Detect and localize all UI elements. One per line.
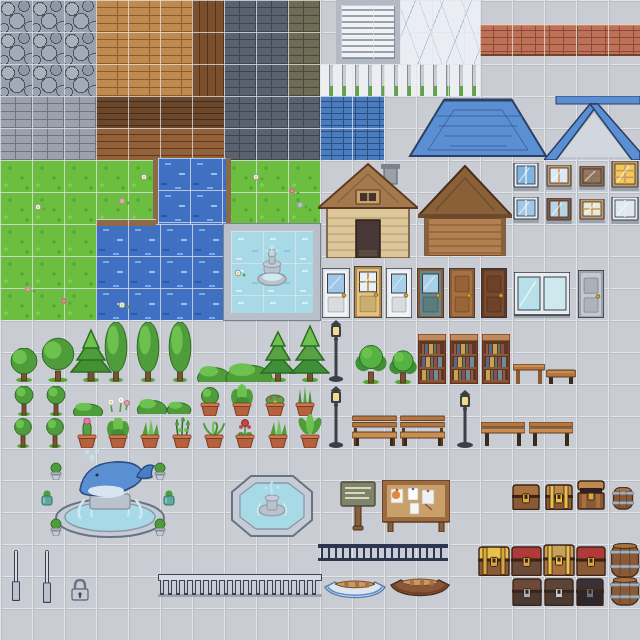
chest-gold-large-graphic [543, 544, 575, 576]
wood-siding-dark [96, 96, 224, 128]
bench-with-back [400, 414, 445, 446]
whale-fountain-graphic [54, 446, 166, 538]
rowboat-white [324, 578, 386, 604]
padlock-graphic [70, 578, 90, 602]
pond-bank [96, 219, 156, 226]
door-tan-window [354, 266, 382, 318]
door-sliding-glass [514, 272, 570, 318]
grass-flower-graphic [118, 300, 132, 310]
teal-planter [40, 490, 54, 506]
door-white-glass [322, 268, 350, 318]
chest-gold-graphic [478, 546, 510, 576]
door-white-blueglass-graphic [386, 268, 412, 318]
cottage-gable-plank [418, 164, 512, 256]
mini-potted-plant-graphic [152, 462, 168, 480]
mini-potted-plant [152, 518, 168, 536]
tileset-sheet: Pixel art village tileset sheet [0, 0, 640, 640]
grass-flower-graphic [140, 172, 154, 182]
brick-wall-slate [224, 0, 288, 160]
potted-big-leaf [296, 414, 324, 448]
potted-fern [200, 418, 228, 448]
potted-plant [136, 418, 164, 448]
mini-potted-plant-graphic [152, 518, 168, 536]
white-picket-fence [320, 64, 480, 96]
mini-potted-plant [152, 462, 168, 480]
window-white-blue-graphic [513, 163, 539, 191]
bookshelf [418, 334, 446, 384]
thin-post-graphic [40, 550, 54, 604]
tree-leafy-small [388, 350, 418, 384]
blue-shingle-wall [320, 96, 384, 160]
potted-plant [104, 418, 132, 448]
mini-potted-plant-graphic [48, 462, 64, 480]
cottage-with-chimney [318, 162, 418, 258]
barrel-large [610, 542, 640, 578]
notice-board-graphic [382, 480, 450, 532]
grass-flower [140, 172, 154, 182]
grass-flower [234, 268, 248, 278]
potted-zz-plant-graphic [168, 414, 196, 448]
door-grey-panel-graphic [578, 270, 604, 318]
bush-low-graphic [72, 396, 104, 416]
bush-blob-graphic [166, 396, 192, 414]
topiary-ball-graphic [8, 386, 40, 416]
bench-with-back-graphic [352, 414, 397, 446]
bush-low [72, 396, 104, 416]
grass-flower-graphic [118, 196, 132, 206]
tree-leafy-small-graphic [388, 350, 418, 384]
grass-flower-graphic [60, 296, 74, 306]
wooden-sign [340, 478, 376, 532]
door-grey-panel [578, 270, 604, 318]
chest-dark-trim [544, 578, 574, 606]
brick-wall-olive [288, 0, 320, 96]
teal-planter-graphic [40, 490, 54, 506]
notice-board [382, 480, 450, 532]
window-brown-four [579, 166, 605, 190]
bench-with-back-graphic [400, 414, 445, 446]
chest-dark-silver [512, 578, 542, 606]
gable-roof-blue-graphic [544, 96, 640, 160]
rowboat-brown [390, 576, 450, 602]
chest-open-graphic [577, 480, 605, 510]
tree-leafy [354, 342, 388, 384]
grass-flower-graphic [234, 268, 248, 278]
tree-leafy-graphic [354, 342, 388, 384]
grass-flower-graphic [24, 284, 38, 294]
potted-red-flower-graphic [232, 416, 258, 448]
door-white-blueglass [386, 268, 412, 318]
window-white-sky [513, 197, 539, 223]
chest-gold [478, 546, 510, 576]
hip-roof-blue-graphic [408, 96, 548, 160]
pine-tall-graphic [290, 318, 330, 382]
topiary-ball-graphic [40, 386, 72, 416]
cottage-with-chimney-graphic [318, 162, 418, 258]
chest-red-lid-graphic [511, 546, 542, 576]
lamp-post-graphic [455, 390, 475, 448]
bench-flat [481, 422, 525, 446]
grass-flower [60, 296, 74, 306]
barrel-small-graphic [612, 486, 634, 510]
tree-cypress-graphic [162, 322, 198, 382]
grass-flower-graphic [252, 172, 266, 182]
octagonal-fountain-graphic [230, 474, 314, 538]
rowboat-white-graphic [324, 578, 386, 604]
chest-wood-closed-graphic [512, 484, 540, 510]
door-teal-glass [417, 268, 444, 318]
potted-zz-plant [168, 414, 196, 448]
bench-flat-graphic [529, 422, 573, 446]
potted-cactus-flower-graphic [74, 418, 100, 448]
thin-post [40, 550, 54, 604]
cobblestone-wall-tiles [0, 0, 96, 96]
potted-plant-graphic [264, 418, 292, 448]
tree-cypress [98, 322, 134, 382]
door-tan-window-graphic [354, 266, 382, 318]
pool-fountain-center [256, 242, 288, 286]
window-blinds-tile [336, 0, 400, 64]
potted-leafy-plant-graphic [228, 384, 256, 416]
marble-wall-tiles [400, 0, 480, 64]
chest-red-lid [511, 546, 542, 576]
grass-flower-graphic [296, 200, 310, 210]
wooden-sign-graphic [340, 478, 376, 532]
bookshelf [450, 334, 478, 384]
potted-cactus-flower [74, 418, 100, 448]
window-white-plain-graphic [611, 197, 639, 224]
window-lit-yellow-graphic [611, 161, 639, 191]
grass-flower [118, 196, 132, 206]
bench-with-back [352, 414, 397, 446]
chest-gold-large [543, 544, 575, 576]
grass-flower [24, 284, 38, 294]
topiary-tall-graphic [8, 414, 38, 448]
window-wood-light-graphic [546, 165, 572, 190]
wood-plank-wall-dark [192, 0, 224, 96]
barrel-large-graphic [610, 542, 640, 578]
potted-red-flower [232, 416, 258, 448]
potted-plant-graphic [136, 418, 164, 448]
window-darkwood [546, 198, 572, 224]
pond [96, 224, 224, 320]
railing-dark [318, 544, 448, 562]
grass-flower [118, 300, 132, 310]
potted-fern-graphic [200, 418, 228, 448]
brick-wall-grey [0, 96, 96, 160]
window-white-sky-graphic [513, 197, 539, 223]
wood-siding-light [96, 128, 224, 160]
barrel-small [612, 486, 634, 510]
grass-flower-graphic [34, 202, 48, 212]
chest-open [577, 480, 605, 510]
bookshelf-graphic [482, 334, 510, 384]
bookshelf-graphic [450, 334, 478, 384]
window-wood-light [546, 165, 572, 190]
window-darkwood-graphic [546, 198, 572, 224]
river-vertical [153, 158, 231, 226]
rowboat-brown-graphic [390, 576, 450, 602]
window-white-plain [611, 197, 639, 224]
tree-cypress [162, 322, 198, 382]
window-brown-four-graphic [579, 166, 605, 190]
potted-moss-flowers [260, 386, 290, 416]
chest-wood-closed [512, 484, 540, 510]
topiary-ball [40, 386, 72, 416]
bookshelf [482, 334, 510, 384]
door-darkbrown-wood [481, 268, 507, 318]
topiary-tall-graphic [40, 414, 70, 448]
wood-plank-wall-light [96, 0, 192, 96]
mini-potted-plant-graphic [48, 518, 64, 536]
octagonal-fountain [230, 474, 314, 538]
window-tan-four [579, 199, 605, 223]
door-teal-glass-graphic [417, 268, 444, 318]
lamp-post [455, 390, 475, 448]
low-bench [546, 368, 576, 384]
bookshelf-graphic [418, 334, 446, 384]
chest-dark-trim-graphic [544, 578, 574, 606]
thin-post [10, 550, 22, 602]
potted-ball-topiary-graphic [196, 384, 224, 416]
grass-flower [252, 172, 266, 182]
mini-potted-plant [48, 518, 64, 536]
lamp-post [327, 386, 345, 448]
chest-red-top [576, 546, 606, 576]
tree-cypress [130, 322, 166, 382]
door-darkbrown-wood-graphic [481, 268, 507, 318]
brick-wall-slate-lower [288, 96, 320, 160]
gable-roof-blue [544, 96, 640, 160]
potted-plant-graphic [104, 418, 132, 448]
pool-fountain-center-graphic [256, 242, 288, 286]
lamp-post [327, 320, 345, 382]
potted-plant [264, 418, 292, 448]
small-table-graphic [513, 364, 545, 384]
potted-snake-plant [292, 384, 318, 416]
window-lit-yellow [611, 161, 639, 191]
door-sliding-glass-graphic [514, 272, 570, 318]
hip-roof-blue [408, 96, 548, 160]
tree-cypress-graphic [98, 322, 134, 382]
grass-flower [34, 202, 48, 212]
low-bench-graphic [546, 368, 576, 384]
grass-flower-graphic [288, 186, 302, 196]
potted-snake-plant-graphic [292, 384, 318, 416]
window-white-blue [513, 163, 539, 191]
door-white-glass-graphic [322, 268, 350, 318]
bush-leafy [136, 390, 168, 414]
pine-tall [290, 318, 330, 382]
chest-dark-silver-graphic [512, 578, 542, 606]
grass-flower [288, 186, 302, 196]
bush-blob [166, 396, 192, 414]
grass-patch [224, 160, 320, 224]
chest-black-graphic [576, 578, 604, 606]
potted-ball-topiary [196, 384, 224, 416]
lamp-post-graphic [327, 386, 345, 448]
chest-black [576, 578, 604, 606]
chest-red-top-graphic [576, 546, 606, 576]
topiary-ball [8, 386, 40, 416]
small-table [513, 364, 545, 384]
flower-clump [104, 392, 132, 414]
potted-big-leaf-graphic [296, 414, 324, 448]
barrel-large [610, 576, 640, 606]
railing-light [158, 572, 322, 600]
chest-gold-trim [545, 484, 573, 510]
bench-flat-graphic [481, 422, 525, 446]
mini-potted-plant [48, 462, 64, 480]
door-brown-wood-graphic [449, 268, 475, 318]
bush-leafy-graphic [136, 390, 168, 414]
bench-flat [529, 422, 573, 446]
red-brick-strip [480, 24, 640, 56]
flower-clump-graphic [104, 392, 132, 414]
potted-moss-flowers-graphic [260, 386, 290, 416]
topiary-tall [8, 414, 38, 448]
railing-dark-graphic [318, 544, 448, 562]
window-tan-four-graphic [579, 199, 605, 223]
whale-fountain [54, 446, 166, 538]
teal-planter-graphic [162, 490, 176, 506]
grass-flower [296, 200, 310, 210]
cottage-gable-plank-graphic [418, 164, 512, 256]
topiary-tall [40, 414, 70, 448]
chest-gold-trim-graphic [545, 484, 573, 510]
lamp-post-graphic [327, 320, 345, 382]
potted-leafy-plant [228, 384, 256, 416]
railing-light-graphic [158, 572, 322, 600]
tree-cypress-graphic [130, 322, 166, 382]
door-brown-wood [449, 268, 475, 318]
padlock [70, 578, 90, 602]
teal-planter [162, 490, 176, 506]
thin-post-graphic [10, 550, 22, 602]
barrel-large-graphic [610, 576, 640, 606]
